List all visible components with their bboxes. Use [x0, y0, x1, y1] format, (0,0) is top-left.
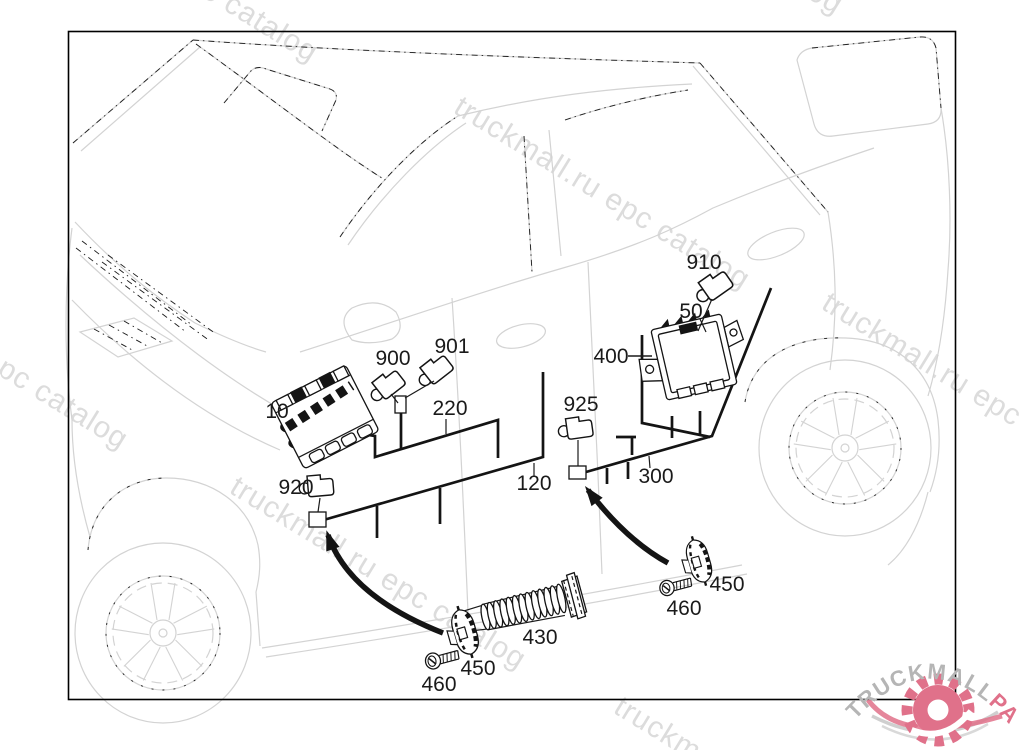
- label-460-left: 460: [421, 673, 456, 696]
- label-220: 220: [432, 397, 467, 420]
- label-925: 925: [563, 393, 598, 416]
- label-920: 920: [278, 476, 313, 499]
- watermark-layer: truckmall.ru epc catalog truckmall.ru ep…: [0, 0, 1024, 750]
- label-901: 901: [434, 335, 469, 358]
- label-10: 10: [265, 400, 288, 423]
- label-300: 300: [638, 465, 673, 488]
- label-450-right: 450: [709, 573, 744, 596]
- label-450-left: 450: [460, 657, 495, 680]
- harness-connector-socket: [395, 396, 406, 413]
- label-910: 910: [686, 251, 721, 274]
- harness-end-connector-right: [569, 466, 586, 479]
- part-number-labels: 10 900 901 220 120 920 925 300 400 50 91…: [265, 251, 744, 696]
- label-460-right: 460: [666, 597, 701, 620]
- watermark-text: truckmall.ru epc catalog: [224, 470, 532, 676]
- label-50: 50: [679, 300, 702, 323]
- label-900: 900: [375, 347, 410, 370]
- label-400: 400: [593, 345, 628, 368]
- label-430: 430: [522, 626, 557, 649]
- screw-460-left: [424, 649, 460, 670]
- parts-diagram-canvas: truckmall.ru epc catalog truckmall.ru ep…: [0, 0, 1024, 750]
- label-120: 120: [516, 472, 551, 495]
- watermark-text: truckmall.ru epc catalog: [16, 0, 324, 69]
- parts-diagram-page: truckmall.ru epc catalog truckmall.ru ep…: [0, 0, 1024, 750]
- clip-925: [557, 415, 594, 440]
- harness-end-connector-left: [309, 512, 326, 527]
- watermark-text: truckmall.ru epc catalog: [541, 0, 849, 21]
